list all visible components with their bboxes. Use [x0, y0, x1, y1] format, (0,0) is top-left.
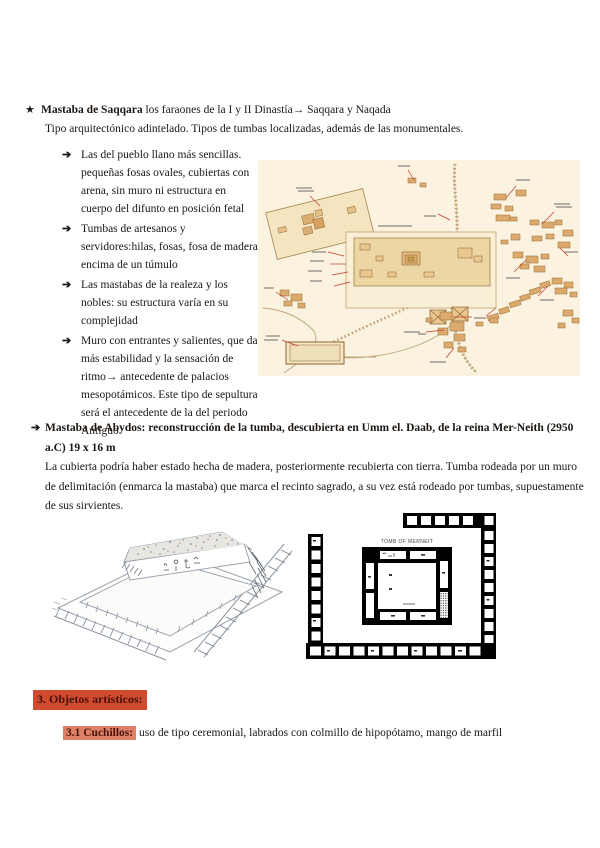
- section3-heading: 3. Objetos artísticos:: [33, 690, 147, 710]
- section1-title: Mastaba de Saqqara: [41, 104, 143, 116]
- bullet-text: Las del pueblo llano más sencillas. pequ…: [81, 146, 260, 218]
- section1-intro: Tipo arquitectónico adintelado. Tipos de…: [45, 120, 463, 139]
- bullet-text: Tumbas de artesanos y servidores:hilas, …: [81, 220, 260, 274]
- list-item: ➔ Las del pueblo llano más sencillas. pe…: [62, 146, 260, 218]
- section2-heading: Mastaba de Abydos: reconstrucción de la …: [45, 419, 585, 458]
- section1-bullet-list: ➔ Las del pueblo llano más sencillas. pe…: [62, 146, 260, 442]
- djoser-complex: [346, 232, 496, 308]
- plan-title: TOMB OF MERNEIT: [381, 539, 434, 545]
- mastaba-reconstruction-sketch: [52, 504, 294, 668]
- south-monument: [286, 342, 344, 364]
- list-item: ➔ Tumbas de artesanos y servidores:hilas…: [62, 220, 260, 274]
- arrow-bullet-icon: ➔: [62, 276, 81, 330]
- saqqara-necropolis-map-figure: [258, 160, 580, 378]
- section1-heading: Mastaba de Saqqara los faraones de la I …: [41, 101, 391, 120]
- arrow-bullet-icon: ➔: [62, 146, 81, 218]
- list-item: ➔ Las mastabas de la realeza y los noble…: [62, 276, 260, 330]
- section3-sub-body: uso de tipo ceremonial, labrados con col…: [136, 727, 502, 739]
- central-mastaba: [362, 547, 452, 625]
- star-bullet-icon: ★: [25, 103, 35, 116]
- arrow-bullet-icon: ➔: [31, 421, 40, 434]
- section3-heading-wrap: 3. Objetos artísticos:: [33, 690, 147, 710]
- document-page: ★ Mastaba de Saqqara los faraones de la …: [0, 0, 600, 848]
- section3-subitem: 3.1 Cuchillos: uso de tipo ceremonial, l…: [63, 727, 502, 739]
- section3-sub-heading: 3.1 Cuchillos:: [63, 726, 136, 740]
- section1-title-rest: los faraones de la I y II Dinastía→ Saqq…: [143, 104, 391, 116]
- merneith-tomb-plan: TOMB OF MERNEIT: [303, 506, 498, 664]
- arrow-bullet-icon: ➔: [62, 220, 81, 274]
- bullet-text: Las mastabas de la realeza y los nobles:…: [81, 276, 260, 330]
